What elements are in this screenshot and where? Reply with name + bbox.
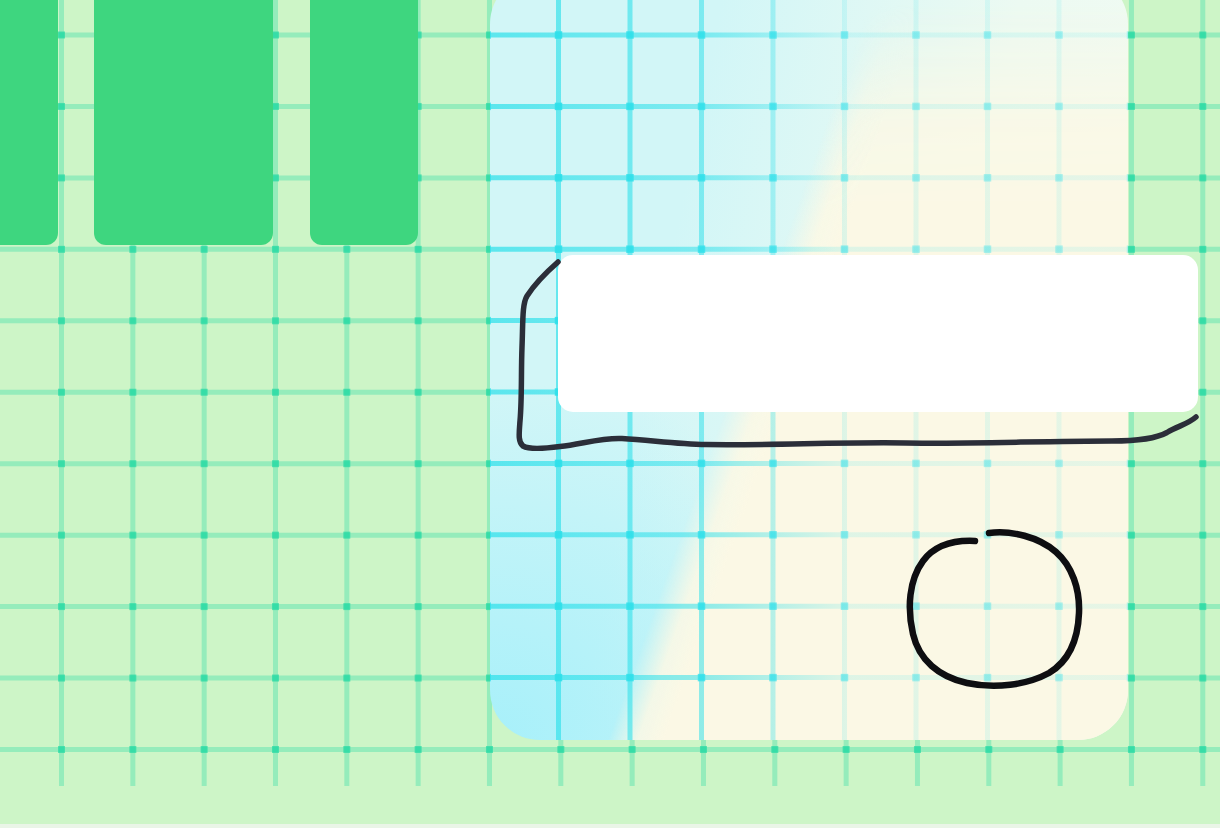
green-tile-left[interactable] xyxy=(0,0,58,245)
canvas-bottom-edge xyxy=(0,824,1220,828)
green-tile-middle[interactable] xyxy=(94,0,273,245)
whiteboard-canvas xyxy=(0,0,1220,828)
green-tile-right[interactable] xyxy=(310,0,418,245)
white-card[interactable] xyxy=(558,255,1198,412)
